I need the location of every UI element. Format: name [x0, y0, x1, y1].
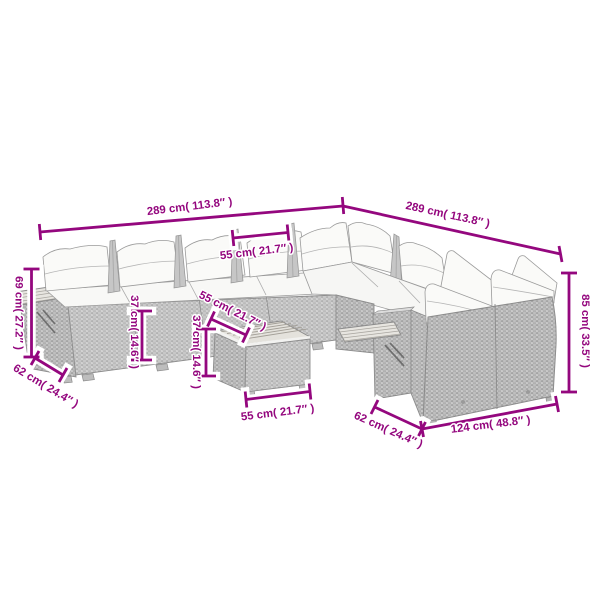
svg-text:85 cm( 33.5″ ): 85 cm( 33.5″ )	[579, 294, 591, 368]
svg-text:37 cm( 14.6″ ): 37 cm( 14.6″ )	[190, 315, 202, 389]
svg-text:37 cm( 14.6″ ): 37 cm( 14.6″ )	[128, 295, 140, 369]
svg-text:69 cm( 27.2″ ): 69 cm( 27.2″ )	[13, 276, 25, 350]
